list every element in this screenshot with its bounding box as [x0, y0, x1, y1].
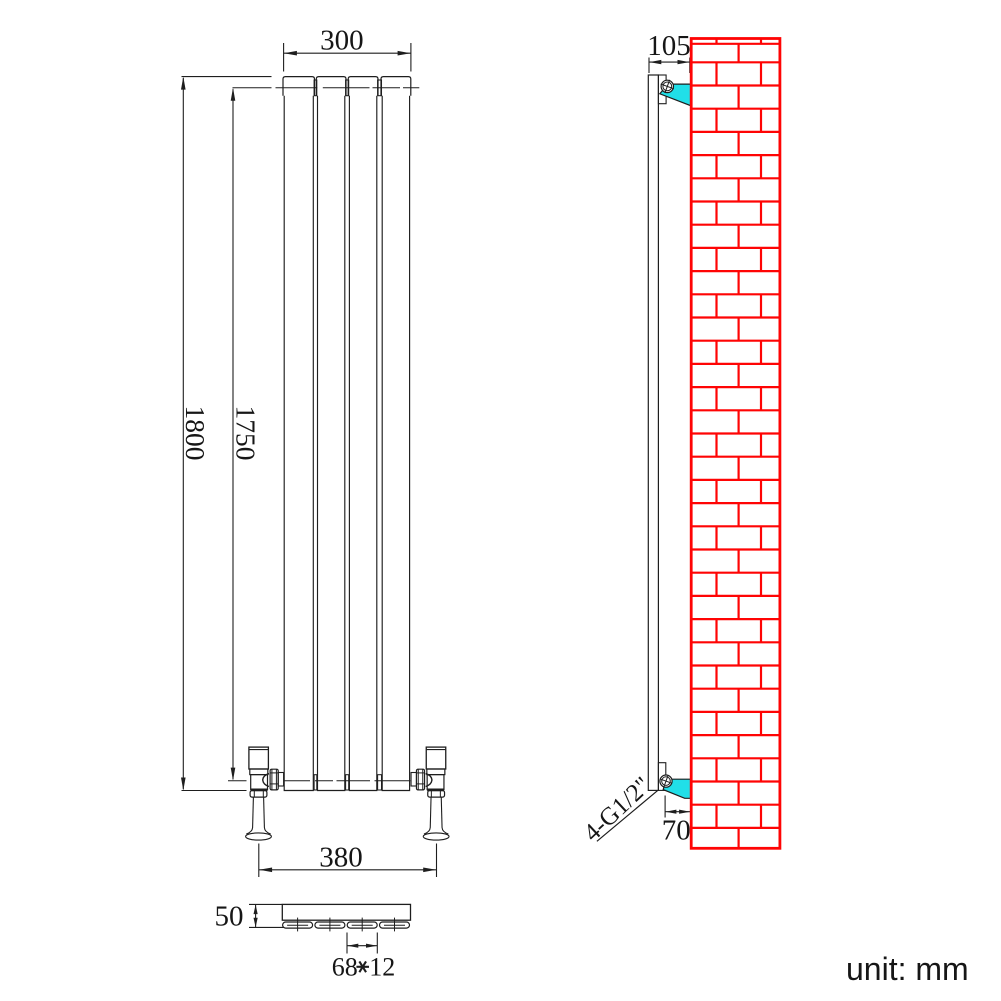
svg-text:300: 300 — [320, 25, 364, 57]
svg-text:12: 12 — [369, 953, 395, 982]
svg-text:50: 50 — [215, 901, 244, 933]
svg-text:70: 70 — [662, 815, 691, 847]
svg-text:380: 380 — [319, 841, 363, 873]
svg-text:1750: 1750 — [231, 406, 262, 461]
svg-text:4-G1/2": 4-G1/2" — [579, 772, 657, 847]
svg-text:unit: mm: unit: mm — [846, 951, 969, 987]
svg-text:68: 68 — [332, 953, 358, 982]
svg-text:1800: 1800 — [180, 406, 211, 461]
svg-text:105: 105 — [647, 30, 691, 62]
